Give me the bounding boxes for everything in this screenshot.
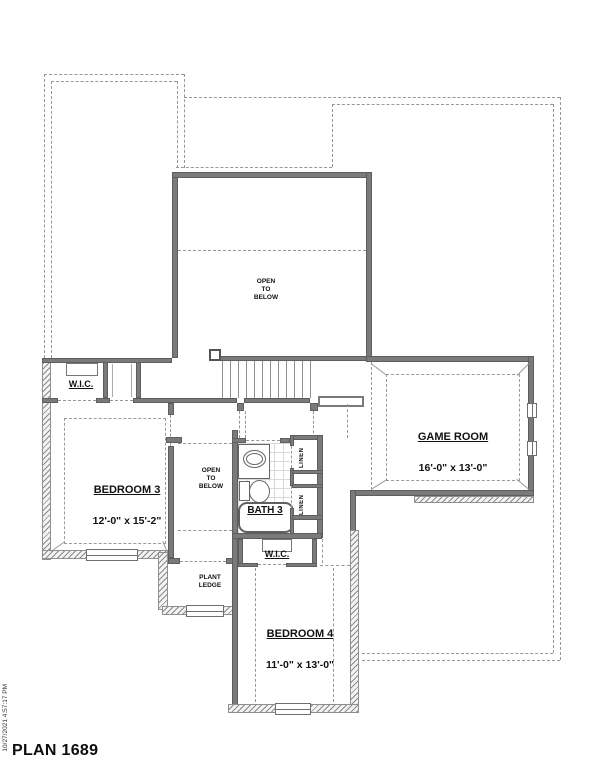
wall-segment [238,539,243,565]
wall-segment [96,398,110,403]
roof-outline-dashed [176,167,332,168]
ceiling-slope-line [371,363,388,376]
wall-segment [237,403,244,411]
roof-outline-dashed [184,74,185,168]
wall-segment [280,438,290,443]
open-to-below-label: OPEN TO BELOW [199,467,223,491]
bath3-label: BATH 3 [247,505,282,516]
opening-dashed [180,561,226,562]
wall-segment [168,403,174,415]
exterior-wall [42,358,51,560]
wall-segment [168,446,174,558]
wall-segment [103,362,108,398]
linen-label: LINEN [299,489,305,515]
roof-outline-dashed [51,81,52,358]
ceiling-break-dashed [255,568,256,702]
wall-segment [133,398,237,403]
wall-segment [244,398,310,403]
linen-label: LINEN [299,442,305,468]
window [186,605,224,617]
sink-icon [246,453,263,465]
door-opening-dashed [320,565,350,566]
room-label-game-room: GAME ROOM 16'-0" x 13'-0" [418,413,488,492]
room-dims: 16'-0" x 13'-0" [418,462,488,475]
window [527,403,537,418]
exterior-wall [414,496,534,503]
window [527,441,537,456]
wall-segment [136,362,141,398]
wall-segment [172,172,372,178]
opening-dashed [245,411,246,438]
ceiling-break-dashed [178,250,366,251]
wall-segment [312,539,317,565]
roof-outline-dashed [51,81,177,82]
door-opening-dashed [291,446,292,468]
roof-outline-dashed [44,74,45,358]
room-name: BEDROOM 4 [266,628,334,641]
door-opening-dashed [58,400,96,401]
roof-outline-dashed [44,74,184,75]
wall-segment [172,172,178,358]
stair-treads [222,361,318,398]
roof-outline-dashed [560,97,561,660]
wall-segment [292,515,323,520]
opening-dashed [371,362,372,490]
wall-segment [528,356,534,496]
room-name: GAME ROOM [418,431,488,444]
wall-segment [290,435,294,446]
wic-label-bedroom4: W.I.C. [265,549,290,559]
wall-segment [292,470,323,474]
stair-half-wall [318,396,364,407]
open-to-below-label: OPEN TO BELOW [254,278,278,302]
wall-segment [42,398,58,403]
opening-dashed [178,443,232,444]
plant-ledge-label: PLANT LEDGE [199,574,221,590]
room-name: BEDROOM 3 [93,484,162,497]
exterior-wall [158,552,168,610]
opening-dashed [322,539,323,563]
wic-label-bedroom3: W.I.C. [69,379,94,389]
opening-dashed [347,404,348,438]
wall-segment [232,438,246,443]
roof-outline-dashed [332,104,553,105]
closet-rod [112,364,113,397]
floor-plan-sheet: OPEN TO BELOW OPEN TO BELOW BEDROOM 3 12… [0,0,614,768]
closet-shelf [66,363,98,376]
window [275,703,311,715]
room-dims: 11'-0" x 13'-0" [266,659,334,672]
door-opening-dashed [110,400,133,401]
roof-outline-dashed [553,104,554,653]
room-label-bedroom4: BEDROOM 4 11'-0" x 13'-0" [266,610,334,689]
wall-segment [286,563,317,567]
opening-dashed [178,530,232,531]
door-opening-dashed [246,440,280,441]
exterior-wall [350,530,359,713]
print-timestamp: 10/27/2021 4:57:17 PM [2,684,9,752]
wall-segment [292,484,323,488]
newel-post [209,349,221,361]
door-opening-dashed [291,486,292,508]
wall-segment [168,558,180,564]
ceiling-slope-line [371,479,388,490]
roof-outline-dashed [177,81,178,168]
roof-outline-dashed [332,104,333,167]
closet-rod [131,364,132,397]
wall-segment [366,356,534,362]
roof-outline-dashed [362,660,560,661]
wall-segment [366,172,372,362]
window [86,549,138,561]
wall-segment [238,563,258,567]
roof-outline-dashed [184,97,560,98]
roof-outline-dashed [362,653,553,654]
room-label-bedroom3: BEDROOM 3 12'-0" x 15'-2" [93,466,162,545]
door-opening-dashed [258,564,286,565]
wall-segment [310,403,318,411]
room-dims: 12'-0" x 15'-2" [93,515,162,528]
toilet-icon [249,480,270,503]
opening-dashed [239,411,240,438]
opening-dashed [313,411,314,438]
wall-segment [350,490,356,532]
plan-title: PLAN 1689 [12,742,98,760]
